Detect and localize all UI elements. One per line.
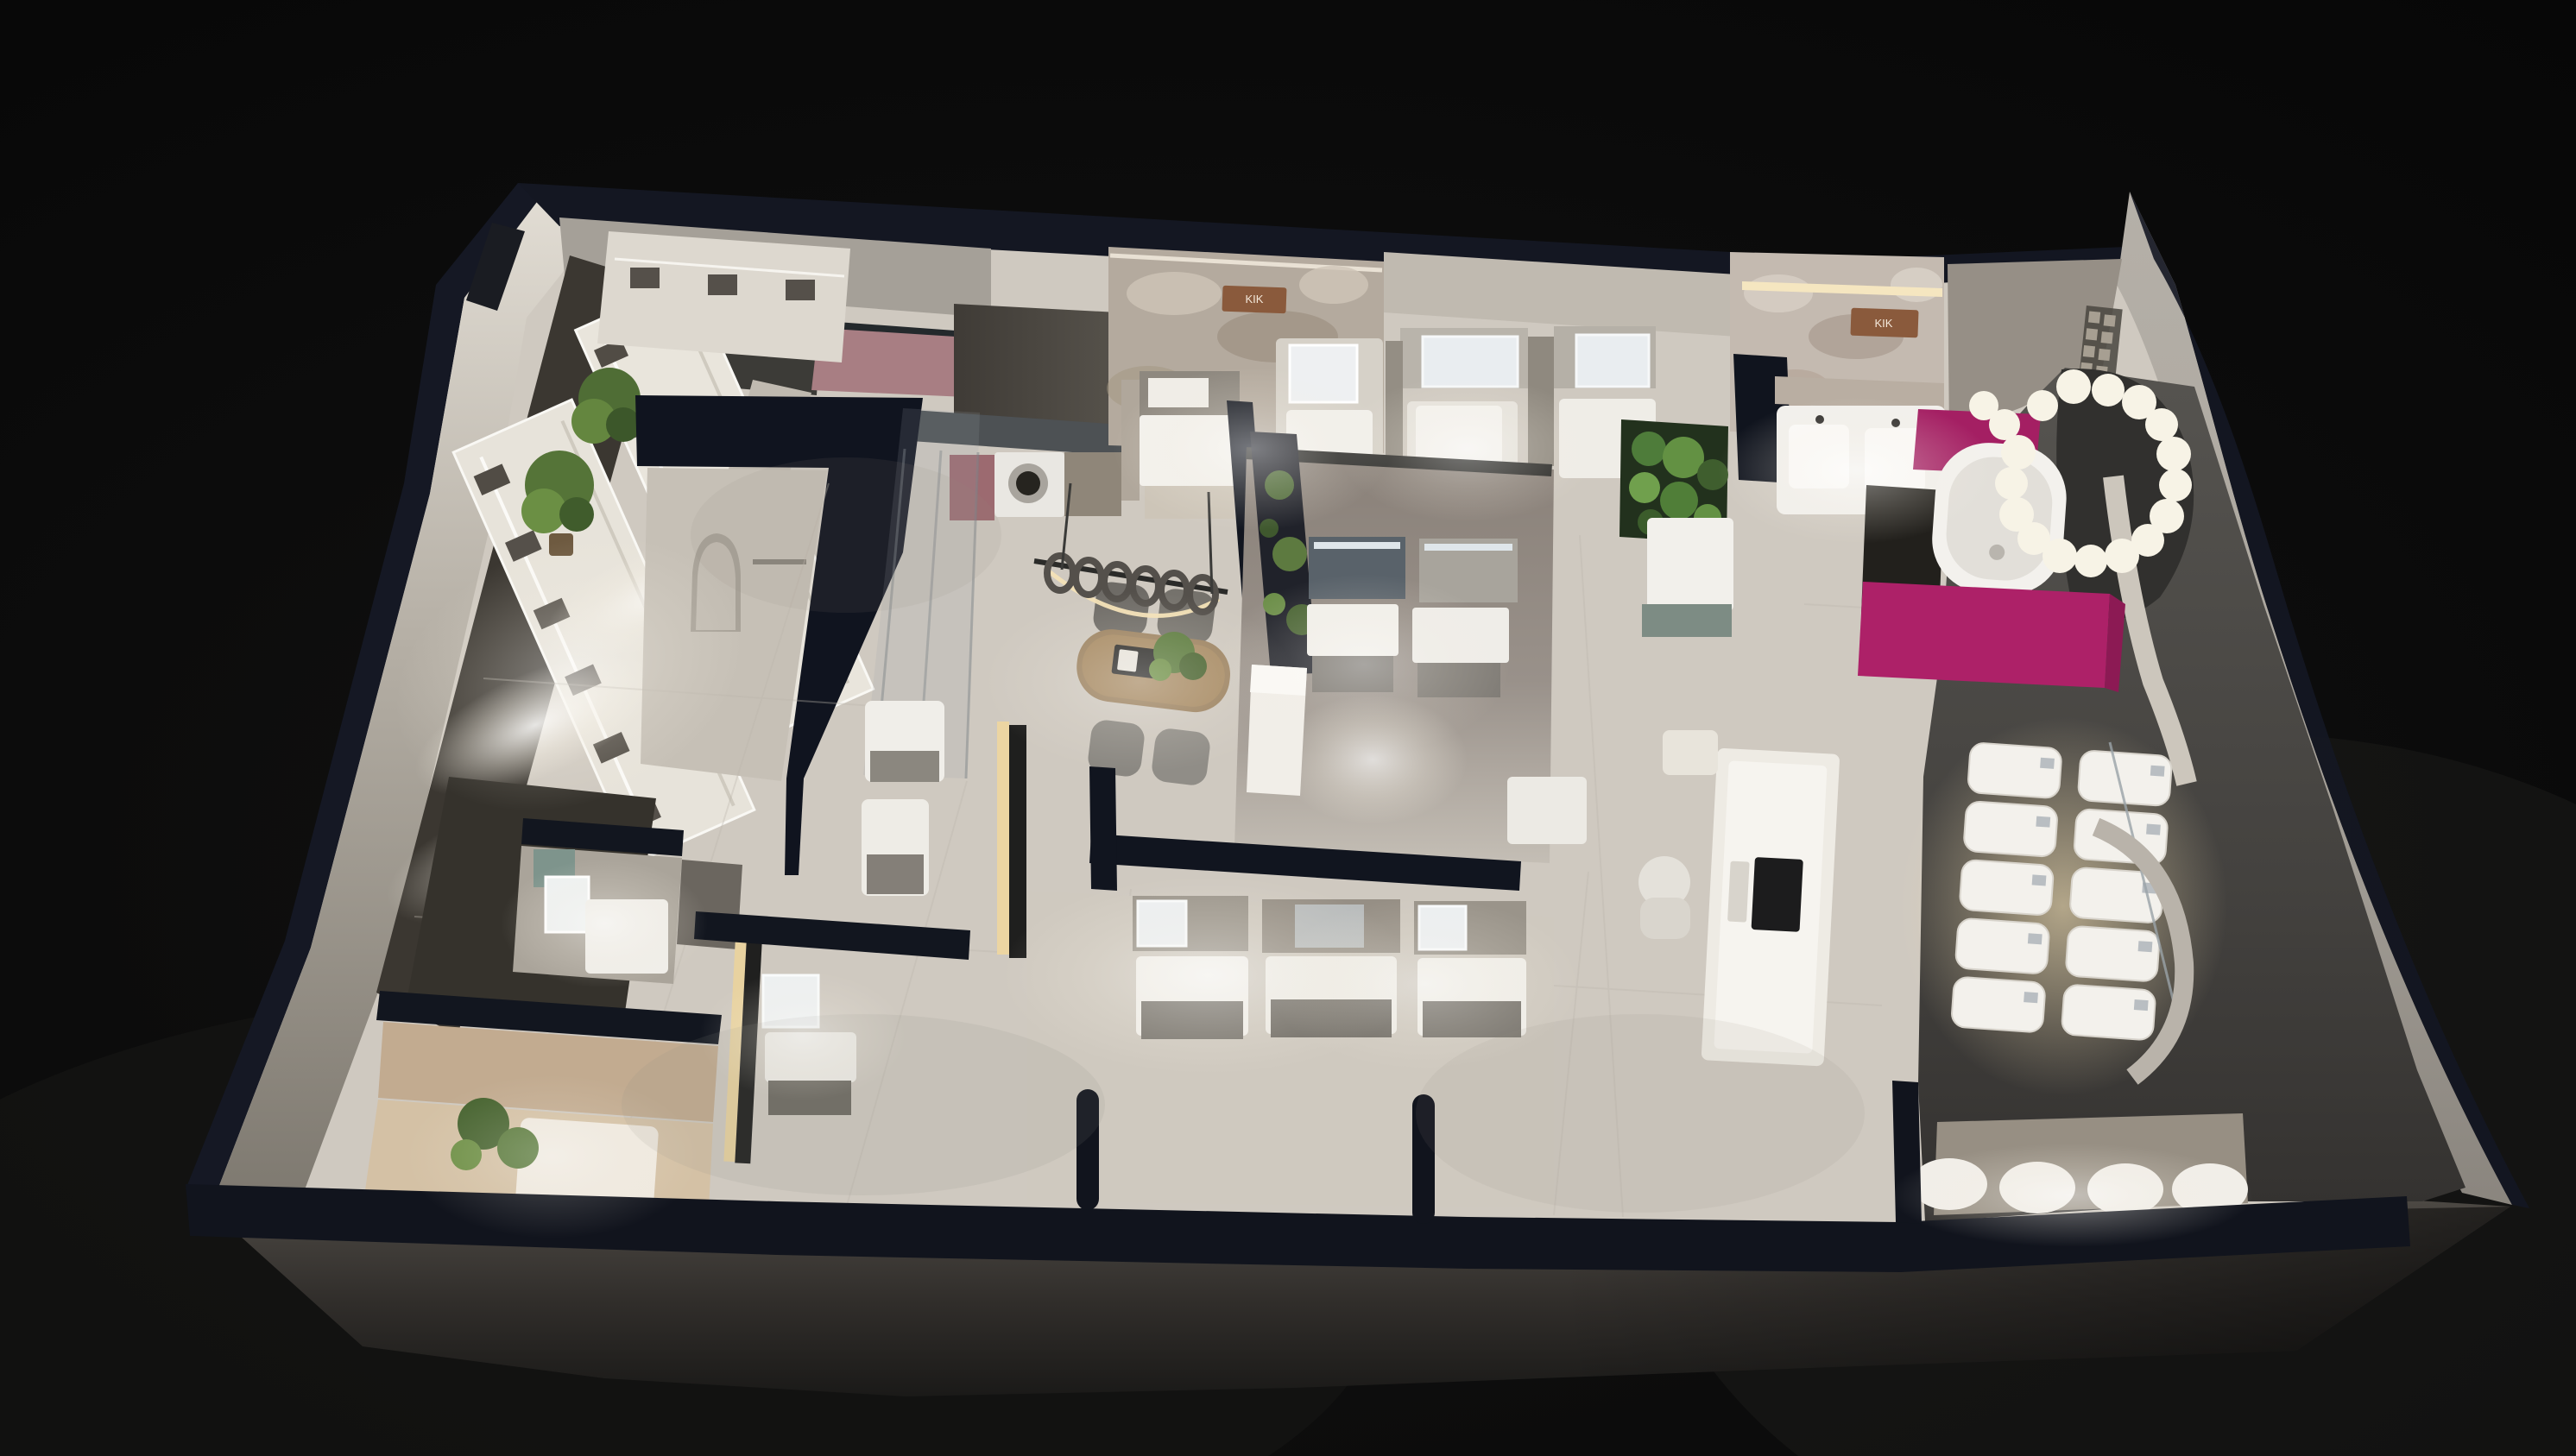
svg-text:KIK: KIK xyxy=(1246,293,1264,306)
svg-text:KIK: KIK xyxy=(1875,317,1893,330)
